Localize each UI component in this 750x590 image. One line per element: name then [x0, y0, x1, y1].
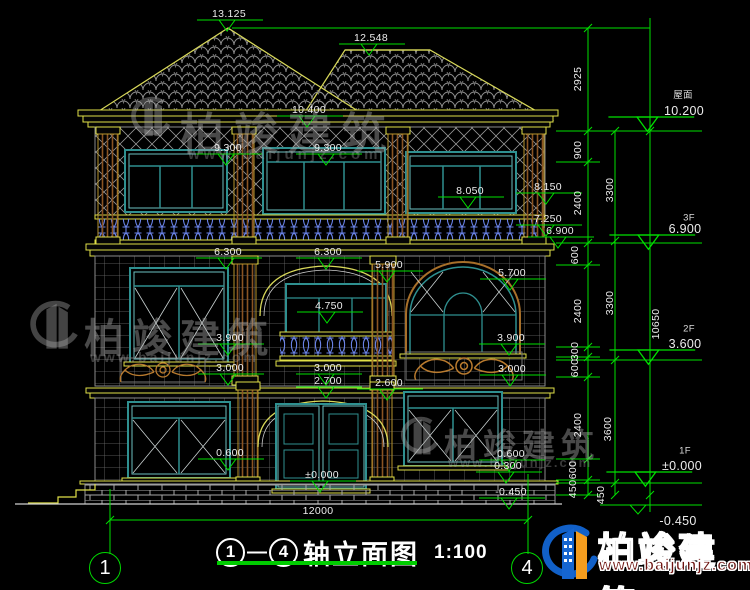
- floor-1f: [95, 382, 545, 493]
- plinth: [80, 481, 558, 504]
- window-2f-left: [124, 268, 234, 366]
- level-marker-symbol: [606, 472, 692, 486]
- window-1f-right: [398, 392, 508, 470]
- window-3f-center: [263, 148, 385, 214]
- window-3f-left: [125, 150, 227, 212]
- level-marker-symbol: [609, 235, 695, 249]
- floor-2f: [95, 256, 545, 386]
- floor-3f: [95, 127, 546, 244]
- window-3f-right: [406, 152, 516, 213]
- eave-cornice: [78, 110, 558, 127]
- elevation-drawing: [0, 0, 750, 590]
- roof: [85, 28, 552, 120]
- cad-elevation-canvas: 柏竣建筑 www.baijunjz.com 柏竣建筑 www.baijunjz.…: [0, 0, 750, 590]
- level-marker-symbol: [609, 350, 695, 364]
- window-1f-left: [122, 402, 236, 482]
- cornice-2f: [86, 244, 554, 256]
- balustrade-3f: [95, 215, 545, 244]
